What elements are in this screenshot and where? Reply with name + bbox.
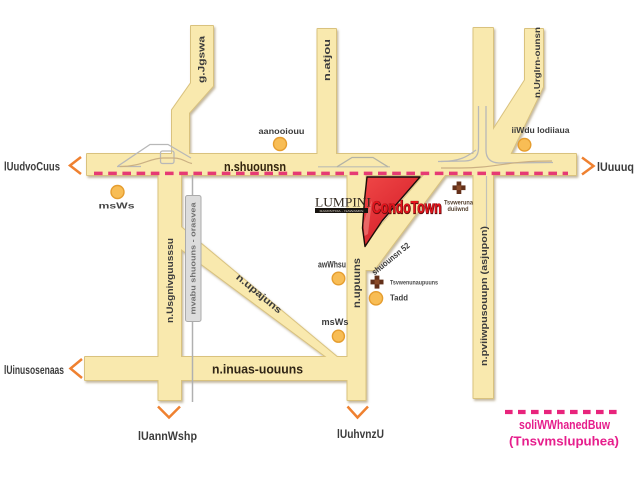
svg-text:Tadd: Tadd (390, 293, 408, 302)
svg-text:n.shuounsn: n.shuounsn (224, 160, 286, 174)
svg-text:mvabu shuouns - orasvea: mvabu shuouns - orasvea (189, 202, 198, 315)
svg-text:g.Jgswa: g.Jgswa (197, 35, 207, 83)
svg-text:msWs: msWs (99, 201, 135, 211)
svg-text:lUudvoCuus: lUudvoCuus (4, 160, 60, 174)
svg-text:lUuhvnzU: lUuhvnzU (337, 427, 384, 441)
svg-text:soliWWhanedBuw: soliWWhanedBuw (519, 418, 610, 432)
svg-text:duiiwnd: duiiwnd (448, 206, 469, 213)
svg-text:n.Urglrn-ounsn: n.Urglrn-ounsn (532, 27, 542, 98)
svg-text:n.Usgnivguusssu: n.Usgnivguusssu (165, 238, 175, 323)
svg-text:CondoTown: CondoTown (372, 197, 442, 217)
svg-text:lUannWshp: lUannWshp (138, 429, 197, 443)
svg-text:lUinusosenaas: lUinusosenaas (4, 363, 64, 377)
svg-text:n.pviiwpusouupn (asjupon): n.pviiwpusouupn (asjupon) (479, 226, 490, 366)
svg-text:RAMINTRA - NAWAMIN: RAMINTRA - NAWAMIN (320, 209, 364, 213)
svg-text:lUuuuq: lUuuuq (597, 160, 634, 174)
svg-text:LUMPINI: LUMPINI (315, 195, 371, 210)
svg-text:msWs: msWs (322, 317, 349, 327)
svg-text:(Tnsvmslupuhea): (Tnsvmslupuhea) (509, 435, 619, 449)
svg-text:n.atjou: n.atjou (322, 39, 332, 81)
svg-text:n.inuas-uouuns: n.inuas-uouuns (212, 363, 303, 377)
svg-text:awWhsu: awWhsu (318, 259, 346, 269)
svg-text:iiWdu lodiiaua: iiWdu lodiiaua (512, 125, 570, 135)
svg-text:Tsvwenunaupuuns: Tsvwenunaupuuns (390, 279, 438, 286)
svg-text:n.upuuns: n.upuuns (352, 258, 363, 308)
svg-text:aanooiouu: aanooiouu (259, 126, 305, 136)
